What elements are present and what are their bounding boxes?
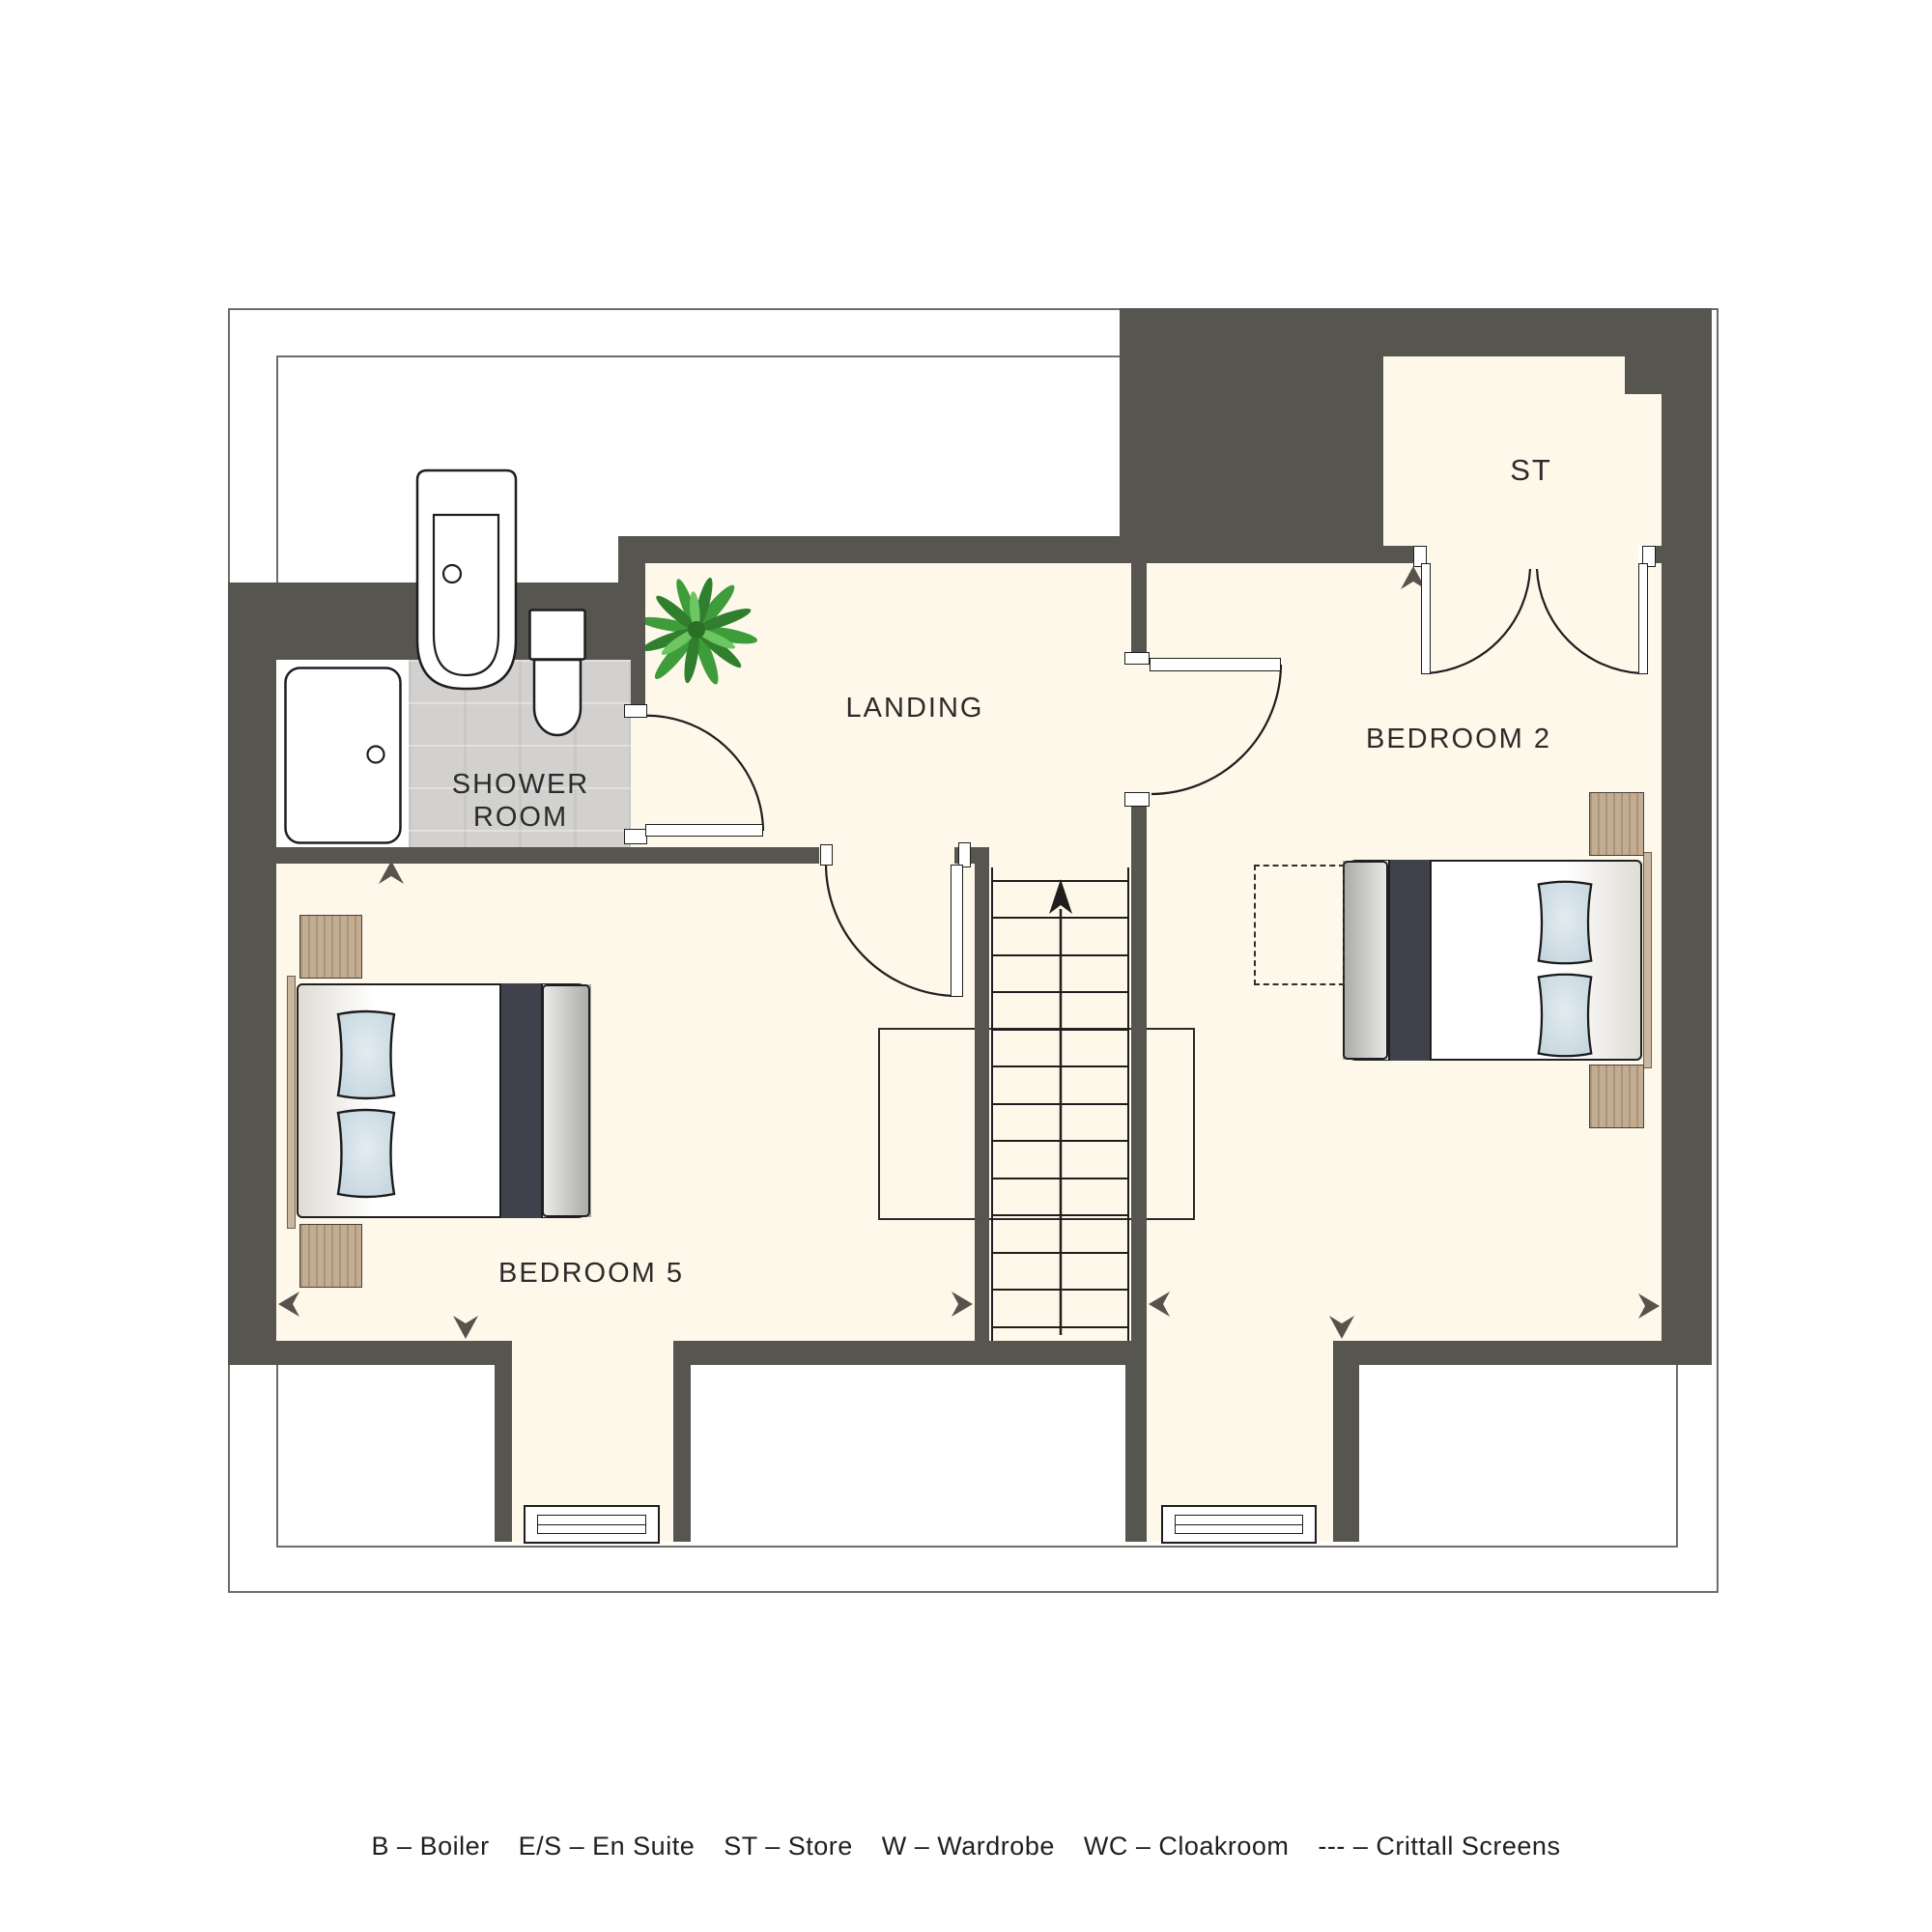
legend-item-crittall: --- – Crittall Screens [1318, 1832, 1560, 1861]
bay-left-window [524, 1505, 660, 1544]
wall-bottom-left [228, 1341, 512, 1365]
bed5-pillow-top-icon [331, 1007, 401, 1103]
store-door-left-arc-icon [1427, 569, 1530, 673]
wall-left-exterior [228, 582, 276, 1365]
label-bedroom-2: BEDROOM 2 [1366, 723, 1551, 755]
label-shower-room: SHOWER ROOM [452, 768, 590, 834]
bedroom5-door-post-left [820, 844, 833, 866]
label-shower-line2: ROOM [473, 802, 568, 833]
bed2-foot-gradient [1343, 861, 1388, 1060]
plant-icon [639, 576, 758, 686]
legend-item-wardrobe: W – Wardrobe [882, 1832, 1055, 1861]
floor-plan: LANDING SHOWER ROOM BEDROOM 2 BEDROOM 5 … [0, 0, 1932, 1932]
bed5-runner [499, 983, 543, 1218]
arrow-right-bed2-icon [1638, 1293, 1660, 1319]
bed2-nightstand-bottom [1589, 1065, 1644, 1128]
wall-strip-above-store [1383, 308, 1712, 356]
shower-door-leaf [645, 824, 763, 837]
wall-bay-left-b [673, 1365, 691, 1542]
sink-icon [415, 469, 518, 693]
bay-right-window [1161, 1505, 1317, 1544]
bay-left-window-mid [537, 1524, 646, 1525]
wall-landing-top [618, 536, 1120, 563]
legend-item-cloakroom: WC – Cloakroom [1084, 1832, 1290, 1861]
wall-bay-right-a [1125, 1365, 1147, 1542]
wall-block-top-right [1120, 308, 1383, 548]
arrow-up-shower-icon [379, 861, 404, 884]
store-door-leaf-right [1638, 563, 1648, 674]
toilet-icon [526, 607, 588, 746]
plan-linework [0, 0, 1932, 1932]
bed2-headboard [1643, 852, 1652, 1068]
label-landing: LANDING [846, 692, 984, 724]
legend-item-ensuite: E/S – En Suite [519, 1832, 696, 1861]
bed2-pillow-top-icon [1532, 877, 1598, 968]
store-door-leaf-left [1421, 563, 1431, 674]
wall-bay-right-b [1333, 1365, 1359, 1542]
shower-door-post-hinge [624, 829, 647, 844]
wall-landing-bottom [228, 847, 819, 864]
bedroom5-door-leaf [951, 865, 963, 997]
arrow-down-bed5-icon [453, 1316, 478, 1339]
label-bedroom-5: BEDROOM 5 [498, 1257, 684, 1290]
shower-tray-icon [283, 666, 403, 845]
arrow-left-bed5-icon [278, 1292, 299, 1317]
wall-bedroom2-top [1120, 546, 1415, 563]
legend-item-store: ST – Store [724, 1832, 853, 1861]
bedroom2-door-post-bottom [1124, 792, 1150, 807]
legend: B – Boiler E/S – En Suite ST – Store W –… [0, 1832, 1932, 1861]
bed5-pillow-bottom-icon [331, 1105, 401, 1202]
arrow-down-bed2-icon [1329, 1316, 1354, 1339]
bed5-nightstand-top [299, 915, 362, 979]
bed5-foot-gradient [543, 984, 591, 1217]
store-door-right-arc-icon [1537, 569, 1640, 673]
bedroom2-door-arc-icon [1151, 665, 1281, 794]
bed2-pillow-bottom-icon [1532, 970, 1598, 1061]
shower-door-arc-icon [639, 716, 763, 831]
bed5-nightstand-bottom [299, 1224, 362, 1288]
stairs-up-arrow-icon [1049, 879, 1072, 1335]
legend-item-boiler: B – Boiler [372, 1832, 490, 1861]
bed2-nightstand-top [1589, 792, 1644, 856]
wall-bedroom2-door-stub [1131, 563, 1147, 654]
wall-landing-top-corner [618, 536, 645, 582]
wall-store-notch [1625, 356, 1662, 394]
wall-bay-left-a [495, 1365, 512, 1542]
wall-stair-right [1131, 807, 1147, 1341]
bed2-runner [1388, 860, 1432, 1061]
bedroom2-door-leaf [1150, 658, 1281, 671]
bay-right-window-mid [1175, 1524, 1303, 1525]
arrow-right-stair-icon [952, 1292, 973, 1317]
bed2-wardrobe-dashed-outline [1254, 865, 1345, 985]
wall-bottom-middle [673, 1341, 1147, 1365]
bedroom2-door-post-top [1124, 652, 1150, 665]
wall-bottom-right [1333, 1341, 1663, 1365]
arrow-left-stair-icon [1149, 1292, 1170, 1317]
wall-stair-left [975, 847, 989, 1341]
bed5-headboard [287, 976, 296, 1229]
label-shower-line1: SHOWER [452, 769, 590, 800]
label-store: ST [1510, 454, 1552, 487]
shower-door-post-top [624, 704, 647, 718]
bedroom5-door-arc-icon [826, 863, 956, 996]
wall-right-exterior [1662, 356, 1712, 1365]
